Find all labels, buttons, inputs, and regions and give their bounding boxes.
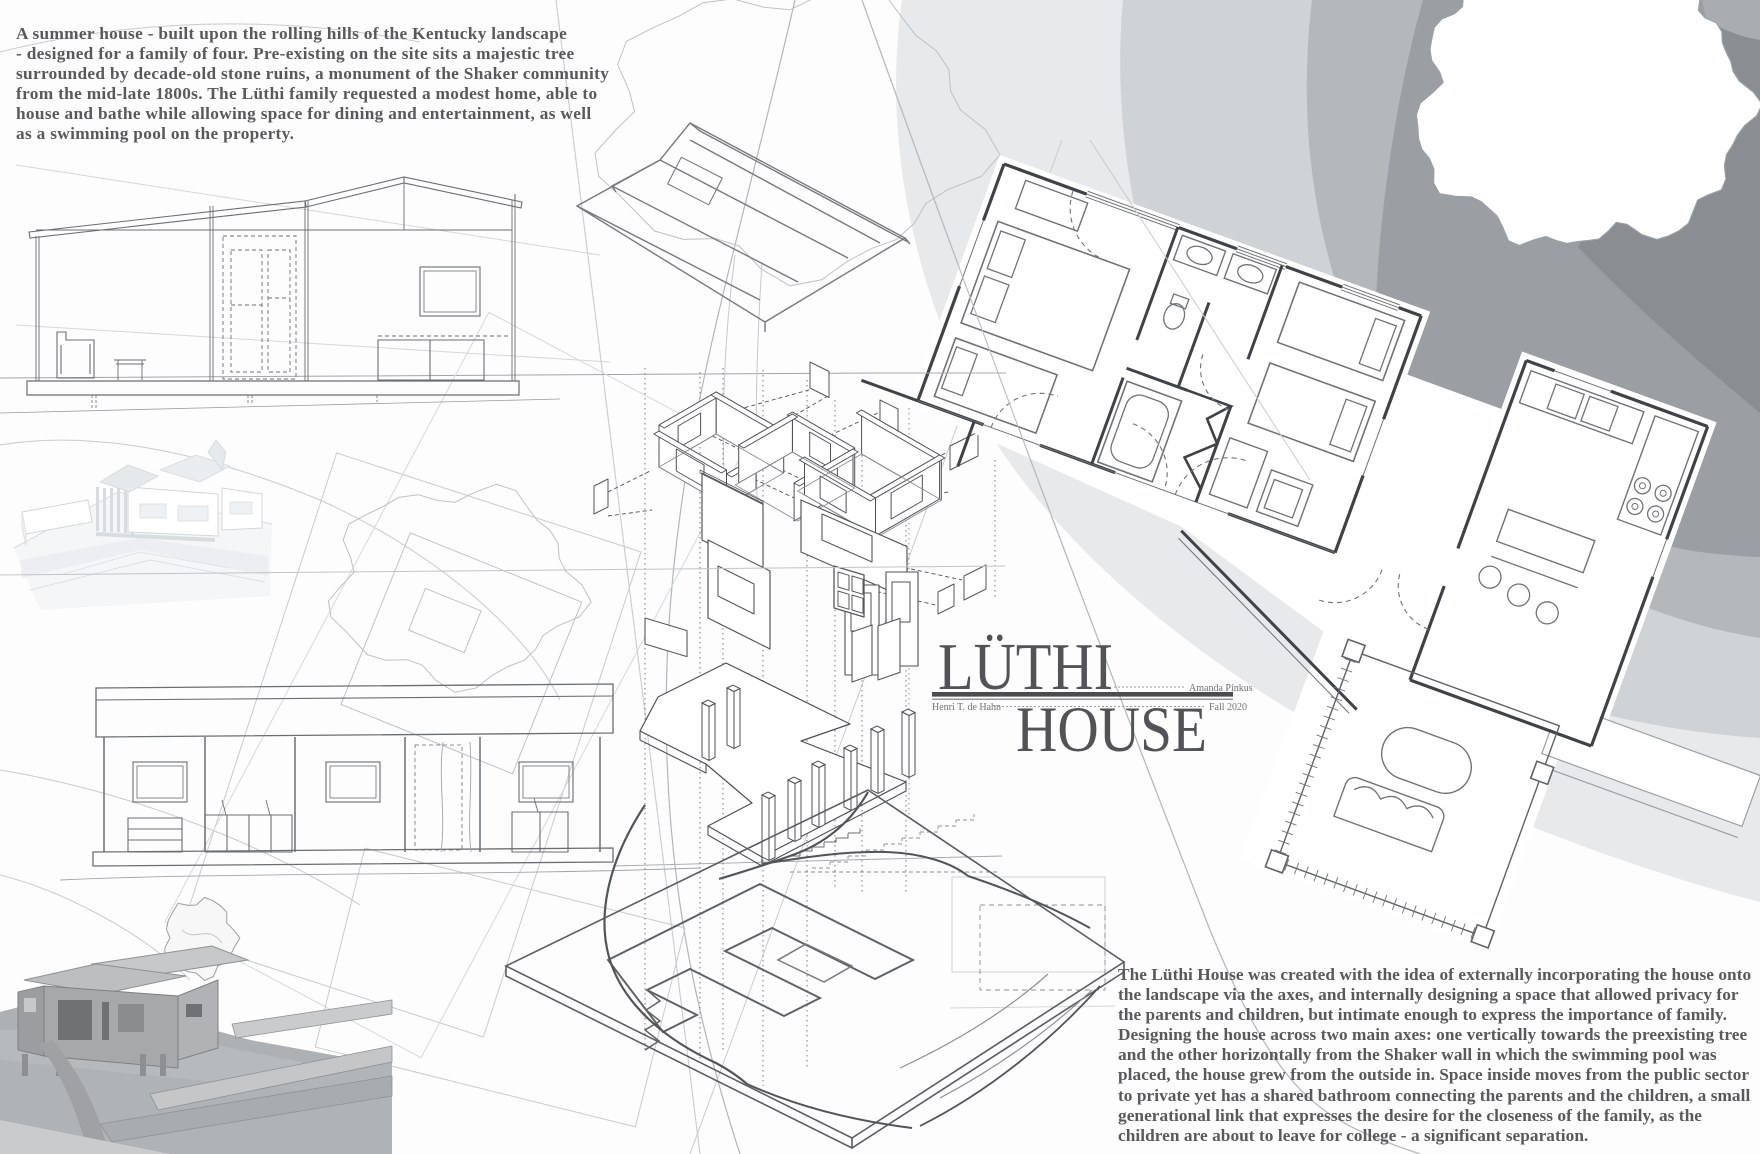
svg-text:Amanda Pinkus: Amanda Pinkus	[1189, 683, 1253, 694]
svg-text:HOUSE: HOUSE	[1016, 694, 1207, 766]
svg-text:Fall 2020: Fall 2020	[1209, 702, 1247, 713]
svg-text:Henri T. de Hahn: Henri T. de Hahn	[932, 702, 1001, 713]
